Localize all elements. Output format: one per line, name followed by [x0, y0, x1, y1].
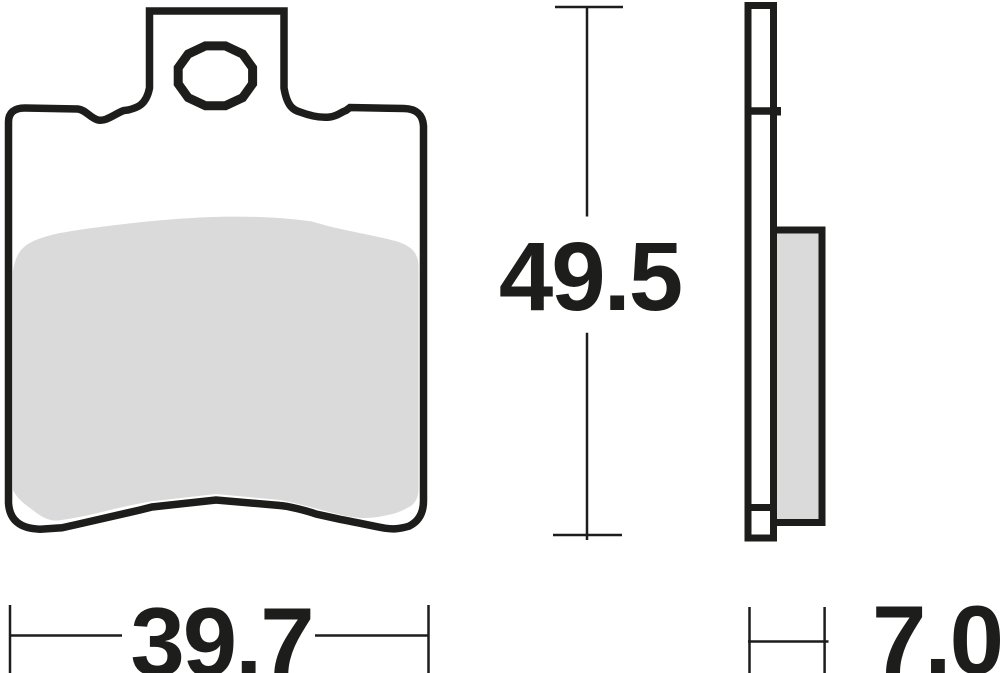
- svg-text:49.5: 49.5: [499, 221, 681, 331]
- svg-text:7.0: 7.0: [872, 585, 1000, 673]
- svg-text:39.7: 39.7: [130, 587, 312, 673]
